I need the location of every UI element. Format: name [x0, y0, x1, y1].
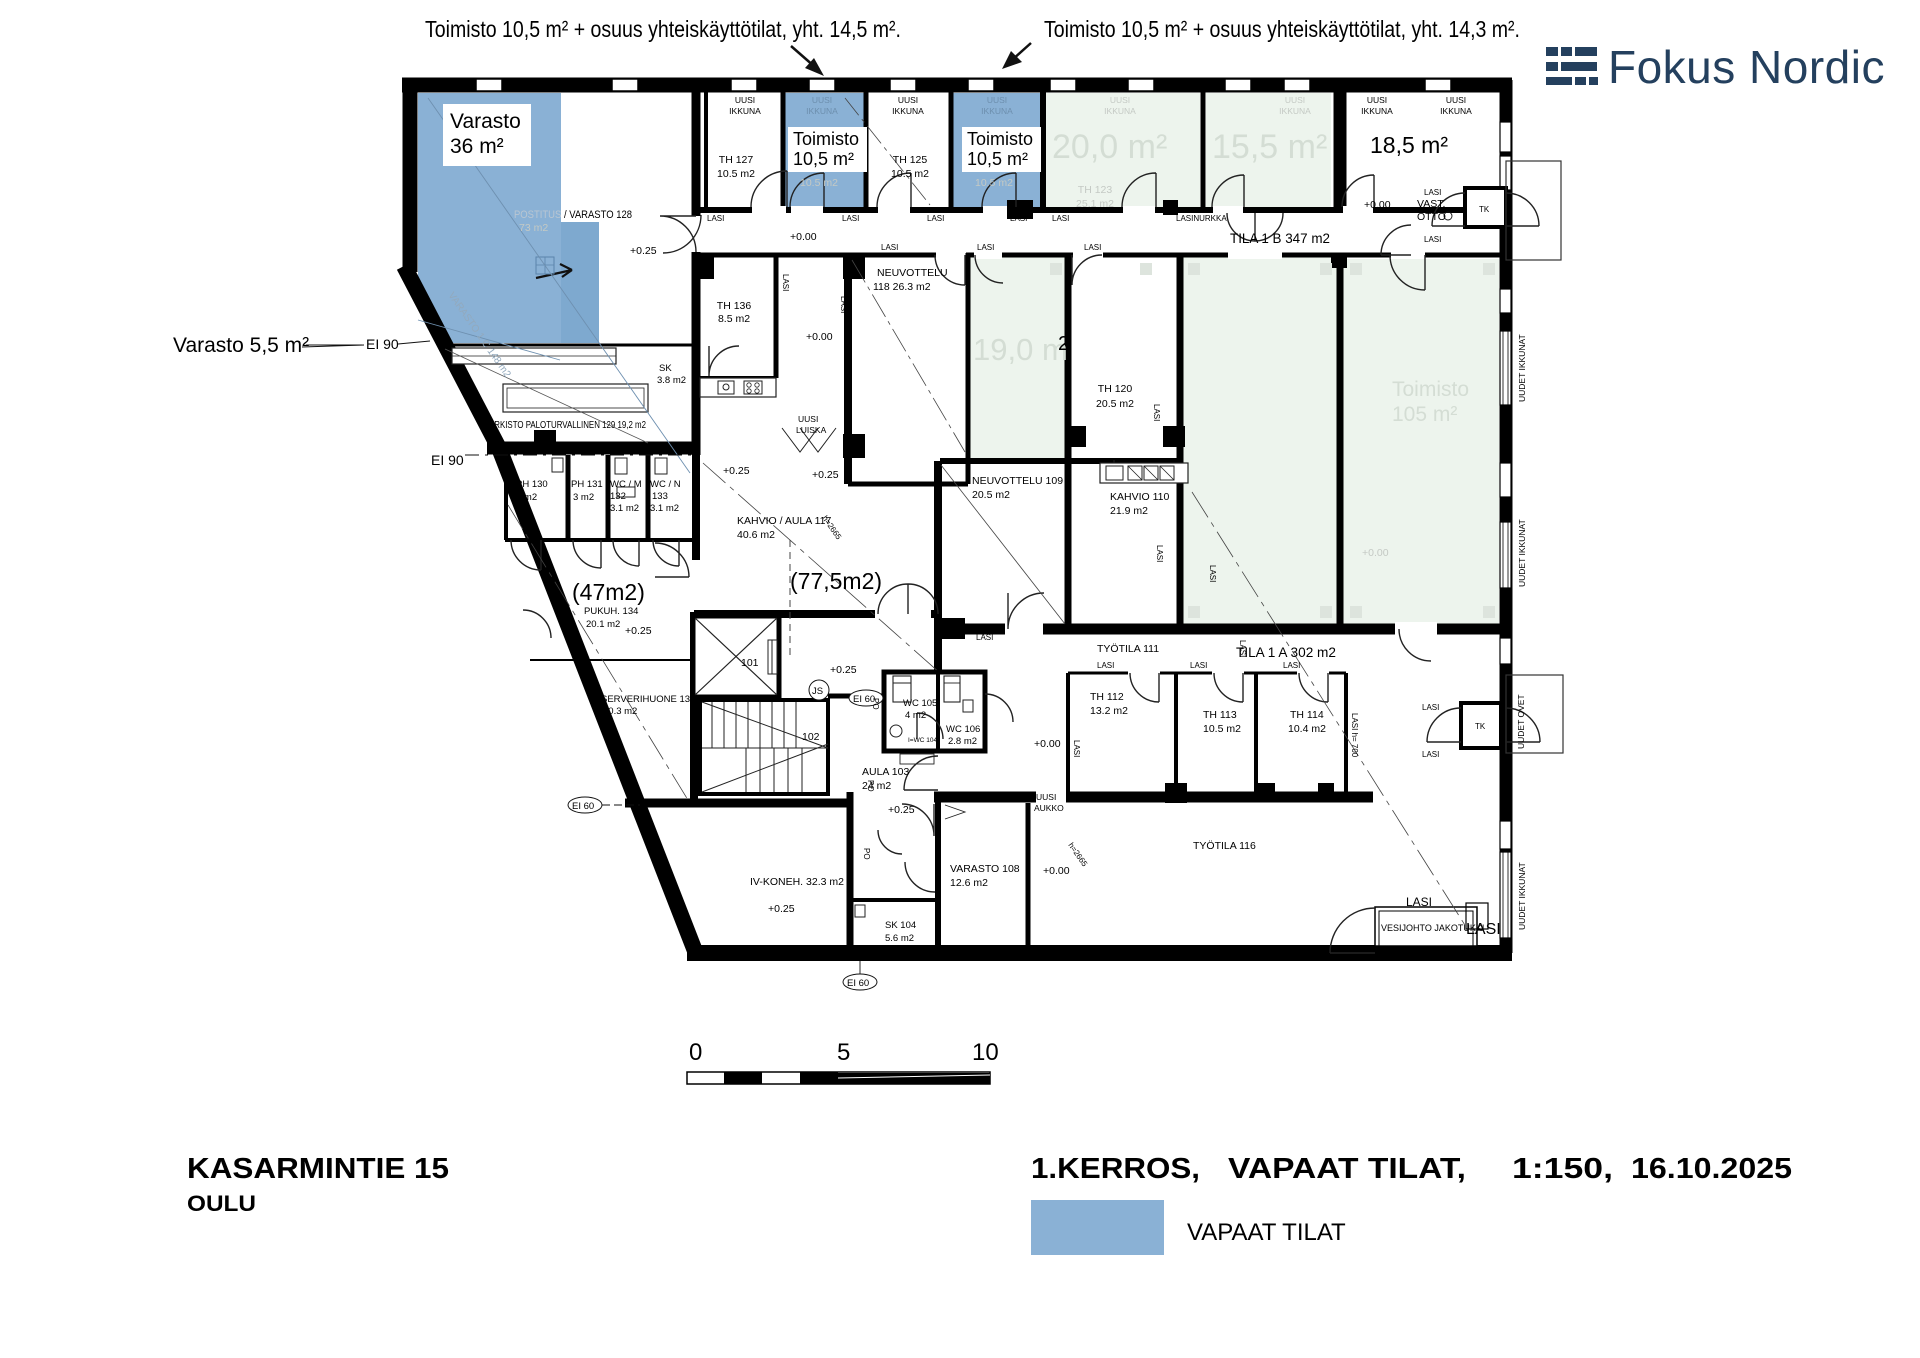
svg-text:Toimisto: Toimisto [793, 129, 859, 149]
svg-text:KAHVIO 110: KAHVIO 110 [1110, 491, 1169, 503]
svg-text:(47m2): (47m2) [572, 579, 645, 605]
svg-text:10,5 m²: 10,5 m² [967, 149, 1028, 169]
svg-text:WC / N: WC / N [650, 479, 681, 490]
svg-text:ARKISTO PALOTURVALLINEN 129: ARKISTO PALOTURVALLINEN 129 19,2 m2 [489, 419, 646, 431]
svg-text:UUSI: UUSI [812, 95, 832, 105]
svg-text:LASI: LASI [1052, 214, 1069, 223]
svg-text:20.5 m2: 20.5 m2 [972, 489, 1010, 501]
svg-text:OTTO: OTTO [1417, 211, 1446, 223]
svg-text:21.9 m2: 21.9 m2 [1110, 505, 1148, 517]
svg-text:10,5 m²: 10,5 m² [793, 149, 854, 169]
svg-text:25.1 m2: 25.1 m2 [1076, 198, 1114, 210]
svg-text:LASI: LASI [1084, 243, 1101, 252]
svg-text:IKKUNA: IKKUNA [981, 106, 1013, 116]
svg-text:TK: TK [1475, 722, 1486, 731]
svg-text:LASI: LASI [707, 214, 724, 223]
svg-text:UUSI: UUSI [798, 414, 818, 424]
svg-text:(77,5m2): (77,5m2) [790, 568, 882, 594]
svg-text:1.KERROS,: 1.KERROS, [1031, 1153, 1200, 1185]
svg-text:AULA 103: AULA 103 [862, 766, 909, 778]
svg-text:I=WC 104: I=WC 104 [908, 737, 937, 744]
svg-text:KASARMINTIE 15: KASARMINTIE 15 [187, 1153, 449, 1185]
svg-text:13.2 m2: 13.2 m2 [1090, 705, 1128, 717]
svg-text:UUSI: UUSI [987, 95, 1007, 105]
svg-text:LASINURKKA: LASINURKKA [1176, 214, 1227, 223]
svg-text:SK 104: SK 104 [885, 920, 916, 931]
svg-text:5: 5 [837, 1039, 850, 1066]
svg-text:UUSI: UUSI [898, 95, 918, 105]
svg-text:+0.00: +0.00 [1362, 547, 1389, 559]
svg-text:UUSI: UUSI [1036, 792, 1056, 802]
svg-text:VARASTO 108: VARASTO 108 [950, 863, 1020, 875]
svg-text:SERVERIHUONE 134: SERVERIHUONE 134 [601, 694, 695, 705]
svg-text:LASI: LASI [1155, 545, 1164, 562]
svg-text:TILA 1 B 347 m2: TILA 1 B 347 m2 [1230, 231, 1330, 246]
svg-text:TYÖTILA 111: TYÖTILA 111 [1097, 643, 1159, 655]
svg-text:LUISKA: LUISKA [796, 425, 827, 435]
svg-text:16.10.2025: 16.10.2025 [1631, 1153, 1792, 1185]
svg-text:LASI: LASI [1072, 740, 1081, 757]
svg-text:+0.00: +0.00 [1364, 199, 1391, 211]
svg-text:IKKUNA: IKKUNA [1104, 106, 1136, 116]
svg-text:EI 60: EI 60 [847, 978, 869, 989]
svg-text:LASI: LASI [1466, 921, 1501, 938]
svg-text:UUSI: UUSI [1110, 95, 1130, 105]
svg-text:IKKUNA: IKKUNA [1279, 106, 1311, 116]
svg-text:+0.25: +0.25 [630, 245, 657, 257]
svg-text:NEUVOTTELU: NEUVOTTELU [877, 267, 948, 279]
svg-text:TH 136: TH 136 [717, 300, 752, 312]
svg-text:LASI: LASI [1424, 188, 1441, 197]
svg-text:LASI: LASI [1152, 404, 1161, 421]
svg-text:WC 106: WC 106 [946, 724, 980, 735]
svg-text:KAHVIO / AULA 117: KAHVIO / AULA 117 [737, 515, 832, 527]
svg-text:+0.25: +0.25 [830, 664, 857, 676]
svg-text:LASI: LASI [1010, 214, 1027, 223]
svg-text:+0.00: +0.00 [790, 231, 817, 243]
svg-text:4 m2: 4 m2 [905, 710, 926, 721]
svg-text:73 m2: 73 m2 [519, 222, 548, 234]
svg-text:LASI: LASI [881, 243, 898, 252]
svg-text:WC 105: WC 105 [903, 698, 937, 709]
svg-text:TILA 1 A 302 m2: TILA 1 A 302 m2 [1236, 645, 1336, 660]
svg-text:IKKUNA: IKKUNA [1440, 106, 1472, 116]
svg-text:IKKUNA: IKKUNA [806, 106, 838, 116]
svg-text:+0.25: +0.25 [812, 469, 839, 481]
svg-text:PO: PO [862, 848, 871, 860]
svg-text:SK: SK [659, 363, 672, 374]
svg-text:Toimisto 10,5 m² + osuus yhtei: Toimisto 10,5 m² + osuus yhteiskäyttötil… [1044, 16, 1520, 42]
svg-text:+0.00: +0.00 [1034, 738, 1061, 750]
svg-text:VAPAAT TILAT,: VAPAAT TILAT, [1228, 1153, 1466, 1185]
svg-text:TH 125: TH 125 [893, 154, 928, 166]
svg-text:10.4 m2: 10.4 m2 [1288, 723, 1326, 735]
svg-text:WC / M: WC / M [610, 479, 642, 490]
svg-text:LASI: LASI [781, 274, 790, 291]
svg-text:102: 102 [802, 731, 820, 743]
svg-text:Fokus Nordic: Fokus Nordic [1608, 41, 1885, 93]
svg-text:133: 133 [652, 491, 668, 502]
svg-text:40.6 m2: 40.6 m2 [737, 529, 775, 541]
svg-text:PH 130: PH 130 [516, 479, 548, 490]
svg-text:Varasto 5,5 m²: Varasto 5,5 m² [173, 334, 309, 357]
svg-text:TH 120: TH 120 [1098, 383, 1133, 395]
svg-text:Toimisto 10,5 m² + osuus yhtei: Toimisto 10,5 m² + osuus yhteiskäyttötil… [425, 16, 901, 42]
svg-text:LASI: LASI [1208, 565, 1217, 582]
svg-text:TK: TK [1479, 205, 1490, 214]
svg-text:10.5 m2: 10.5 m2 [975, 177, 1013, 189]
svg-text:JS: JS [812, 686, 823, 697]
svg-text:3.1 m2: 3.1 m2 [650, 503, 679, 514]
svg-text:NEUVOTTELU 109: NEUVOTTELU 109 [972, 475, 1063, 487]
svg-text:0: 0 [689, 1039, 702, 1066]
svg-text:10.5 m2: 10.5 m2 [891, 168, 929, 180]
svg-text:5.6 m2: 5.6 m2 [885, 933, 914, 944]
svg-text:POSTITUS / VARASTO 128: POSTITUS / VARASTO 128 [514, 209, 632, 221]
svg-text:LASI: LASI [1283, 661, 1300, 670]
svg-text:LASI: LASI [1097, 661, 1114, 670]
svg-text:Varasto: Varasto [450, 110, 521, 133]
svg-text:Toimisto: Toimisto [967, 129, 1033, 149]
svg-text:18,5 m²: 18,5 m² [1370, 132, 1448, 158]
svg-text:LASI: LASI [1424, 235, 1441, 244]
svg-text:LASI: LASI [842, 214, 859, 223]
svg-text:132: 132 [610, 491, 626, 502]
svg-text:IKKUNA: IKKUNA [729, 106, 761, 116]
svg-text:3.1 m2: 3.1 m2 [610, 503, 639, 514]
svg-text:IV-KONEH. 32.3 m2: IV-KONEH. 32.3 m2 [750, 876, 844, 888]
svg-text:10: 10 [972, 1039, 999, 1066]
svg-text:118 26.3 m2: 118 26.3 m2 [873, 281, 931, 293]
svg-text:LASI: LASI [1422, 750, 1439, 759]
svg-text:5 m2: 5 m2 [516, 492, 537, 503]
svg-text:15,5 m²: 15,5 m² [1212, 128, 1327, 166]
svg-text:IKKUNA: IKKUNA [1361, 106, 1393, 116]
svg-text:20,0 m²: 20,0 m² [1052, 128, 1167, 166]
svg-text:UUSI: UUSI [1367, 95, 1387, 105]
svg-text:+0.25: +0.25 [888, 804, 915, 816]
svg-text:2: 2 [1058, 333, 1069, 355]
svg-text:LASI: LASI [839, 296, 848, 313]
svg-text:Toimisto: Toimisto [1392, 378, 1469, 401]
svg-text:12.6 m2: 12.6 m2 [950, 877, 988, 889]
svg-text:TH 112: TH 112 [1090, 691, 1124, 703]
svg-text:PO: PO [871, 698, 880, 710]
svg-text:10.5 m2: 10.5 m2 [1203, 723, 1241, 735]
svg-text:TH 123: TH 123 [1078, 184, 1113, 196]
svg-text:UUDET IKKUNAT: UUDET IKKUNAT [1517, 334, 1527, 402]
svg-text:PH 131: PH 131 [571, 479, 603, 490]
svg-text:2.8 m2: 2.8 m2 [948, 736, 977, 747]
svg-text:TH 127: TH 127 [719, 154, 754, 166]
svg-text:UUDET OVET: UUDET OVET [1516, 694, 1526, 749]
svg-text:LASI: LASI [976, 633, 993, 642]
svg-text:PO: PO [866, 780, 875, 792]
svg-text:UUDET IKKUNAT: UUDET IKKUNAT [1517, 519, 1527, 587]
svg-text:OULU: OULU [187, 1191, 256, 1216]
svg-text:+0.25: +0.25 [768, 903, 795, 915]
svg-text:+0.00: +0.00 [1043, 865, 1070, 877]
svg-text:UUSI: UUSI [1446, 95, 1466, 105]
svg-text:LASI: LASI [977, 243, 994, 252]
svg-text:LASI: LASI [927, 214, 944, 223]
svg-text:UUSI: UUSI [735, 95, 755, 105]
svg-text:101: 101 [741, 657, 759, 669]
svg-text:AUKKO: AUKKO [1034, 803, 1064, 813]
svg-text:LASI: LASI [1406, 895, 1432, 909]
svg-text:EI 90: EI 90 [431, 452, 464, 468]
svg-text:105 m²: 105 m² [1392, 403, 1457, 426]
svg-text:VAPAAT TILAT: VAPAAT TILAT [1187, 1219, 1346, 1246]
svg-text:10.3 m2: 10.3 m2 [603, 706, 637, 717]
svg-text:UUDET IKKUNAT: UUDET IKKUNAT [1517, 862, 1527, 930]
svg-text:10.5 m2: 10.5 m2 [800, 177, 838, 189]
svg-text:VAST.: VAST. [1417, 198, 1445, 210]
svg-text:20.1 m2: 20.1 m2 [586, 619, 620, 630]
svg-text:LASI h= 700: LASI h= 700 [1350, 713, 1359, 758]
svg-text:IKKUNA: IKKUNA [892, 106, 924, 116]
svg-text:20.5 m2: 20.5 m2 [1096, 398, 1134, 410]
svg-text:LASI: LASI [1422, 703, 1439, 712]
svg-text:+0.25: +0.25 [625, 625, 652, 637]
svg-text:LASI: LASI [1190, 661, 1207, 670]
svg-text:TH 113: TH 113 [1203, 709, 1237, 721]
svg-text:8.5 m2: 8.5 m2 [718, 313, 750, 325]
svg-text:PUKUH. 134: PUKUH. 134 [584, 606, 638, 617]
svg-text:EI 60: EI 60 [572, 801, 594, 812]
svg-text:TYÖTILA 116: TYÖTILA 116 [1193, 840, 1256, 852]
svg-text:19,0 m: 19,0 m [973, 332, 1068, 367]
svg-text:UUSI: UUSI [1285, 95, 1305, 105]
svg-text:3 m2: 3 m2 [573, 492, 594, 503]
svg-text:10.5 m2: 10.5 m2 [717, 168, 755, 180]
svg-text:TH 114: TH 114 [1290, 709, 1324, 721]
svg-text:EI 90: EI 90 [366, 336, 399, 352]
svg-text:36 m²: 36 m² [450, 135, 504, 158]
svg-text:3.8 m2: 3.8 m2 [657, 375, 686, 386]
svg-text:+0.25: +0.25 [723, 465, 750, 477]
svg-text:1:150,: 1:150, [1512, 1153, 1613, 1185]
svg-text:+0.00: +0.00 [806, 331, 833, 343]
